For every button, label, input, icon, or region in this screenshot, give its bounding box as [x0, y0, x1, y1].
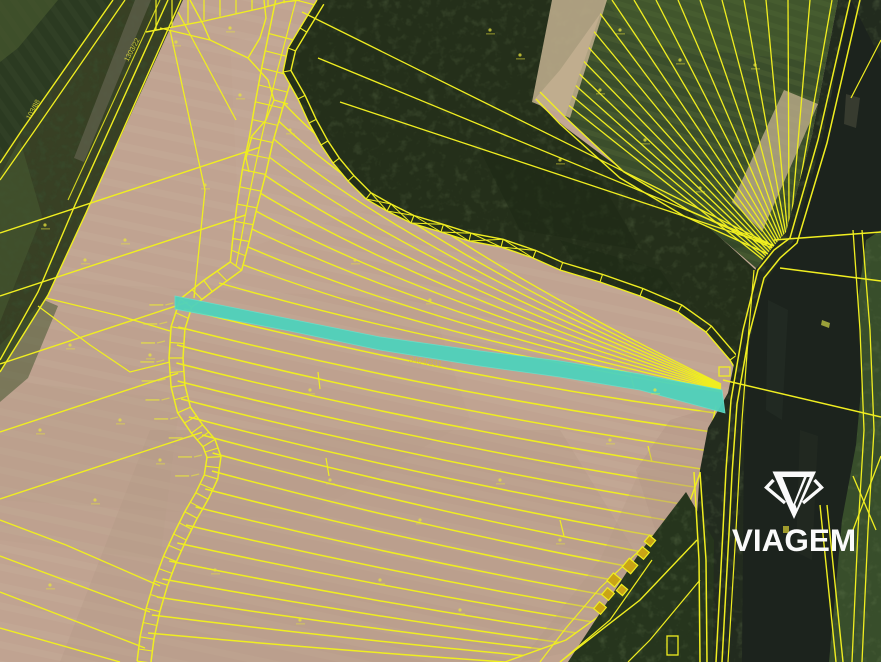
- svg-text:VIAGEM: VIAGEM: [732, 522, 856, 558]
